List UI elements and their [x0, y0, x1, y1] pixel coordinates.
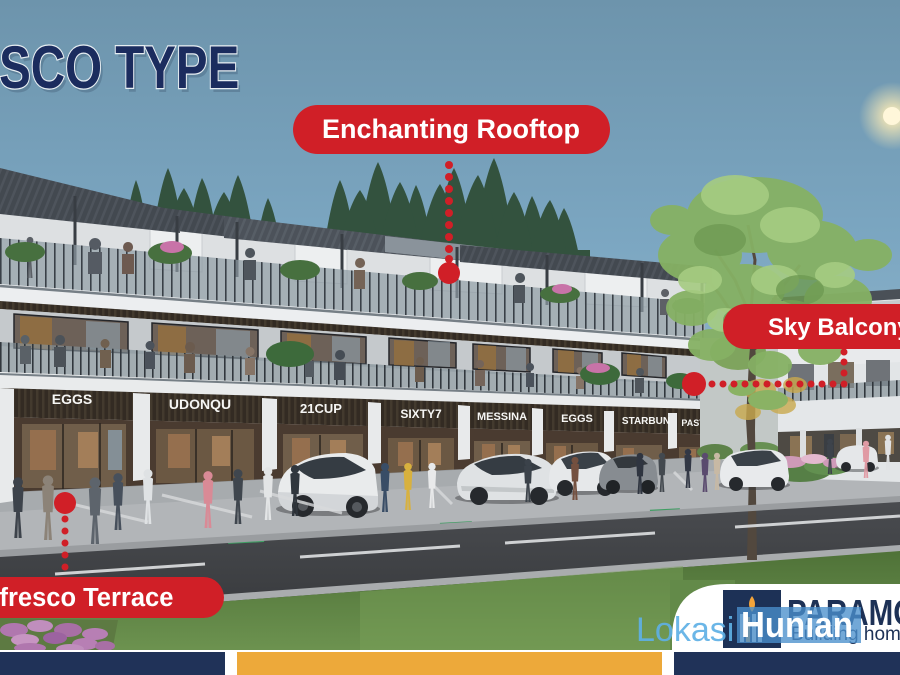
svg-text:Lokasi: Lokasi	[636, 611, 734, 649]
svg-text:Hunian: Hunian	[741, 604, 853, 645]
svg-text:STARBUN: STARBUN	[622, 416, 670, 427]
svg-text:EGGS: EGGS	[561, 413, 593, 425]
svg-text:MESSINA: MESSINA	[477, 411, 527, 423]
svg-text:21CUP: 21CUP	[300, 401, 342, 416]
svg-text:EGGS: EGGS	[52, 391, 92, 407]
svg-text:Sky Balcony: Sky Balcony	[768, 314, 900, 341]
svg-text:UDONQU: UDONQU	[169, 396, 231, 412]
svg-text:SIXTY7: SIXTY7	[400, 407, 442, 421]
svg-text:Alfresco Terrace: Alfresco Terrace	[0, 584, 173, 612]
svg-text:ALFRESCO TYPE: ALFRESCO TYPE	[0, 33, 239, 101]
svg-text:Enchanting Rooftop: Enchanting Rooftop	[322, 114, 580, 144]
